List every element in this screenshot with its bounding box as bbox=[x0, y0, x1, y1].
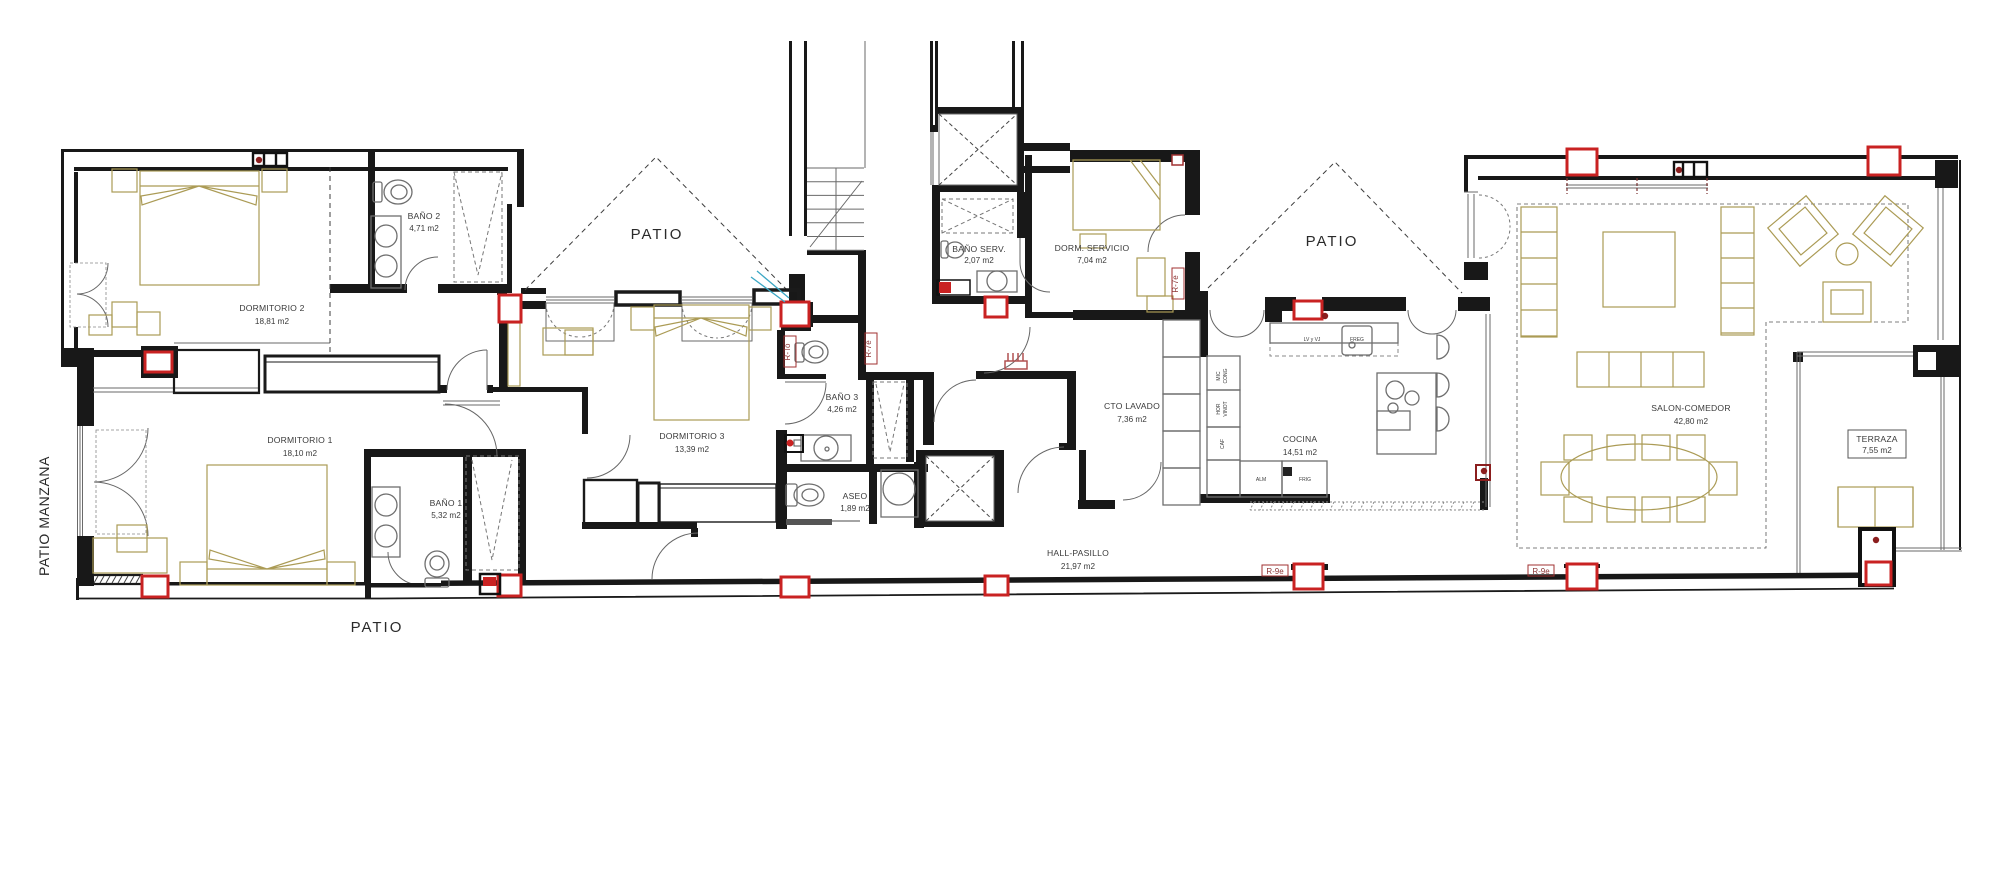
svg-text:R-7e: R-7e bbox=[1171, 275, 1180, 293]
svg-text:DORM. SERVICIO: DORM. SERVICIO bbox=[1055, 243, 1130, 253]
svg-text:18,81 m2: 18,81 m2 bbox=[255, 317, 290, 326]
svg-text:FRIG: FRIG bbox=[1299, 477, 1311, 483]
svg-text:SALON-COMEDOR: SALON-COMEDOR bbox=[1651, 403, 1730, 413]
svg-text:BAÑO 2: BAÑO 2 bbox=[408, 211, 441, 221]
svg-text:42,80 m2: 42,80 m2 bbox=[1674, 417, 1709, 426]
svg-text:COCINA: COCINA bbox=[1283, 434, 1318, 444]
svg-text:4,26 m2: 4,26 m2 bbox=[827, 405, 857, 414]
svg-text:R-9e: R-9e bbox=[1532, 567, 1550, 576]
svg-text:13,39 m2: 13,39 m2 bbox=[675, 445, 710, 454]
svg-text:BAÑO 1: BAÑO 1 bbox=[430, 498, 463, 508]
svg-text:5,32 m2: 5,32 m2 bbox=[431, 511, 461, 520]
svg-text:LV y VJ: LV y VJ bbox=[1304, 337, 1321, 343]
svg-text:PATIO MANZANA: PATIO MANZANA bbox=[36, 456, 52, 576]
svg-text:CONG: CONG bbox=[1223, 368, 1229, 383]
svg-text:CTO LAVADO: CTO LAVADO bbox=[1104, 401, 1160, 411]
svg-text:DORMITORIO 2: DORMITORIO 2 bbox=[239, 303, 304, 313]
svg-text:18,10 m2: 18,10 m2 bbox=[283, 449, 318, 458]
svg-text:ALM: ALM bbox=[1256, 477, 1266, 483]
svg-text:7,55 m2: 7,55 m2 bbox=[1862, 446, 1892, 455]
svg-text:7,36 m2: 7,36 m2 bbox=[1117, 415, 1147, 424]
svg-text:HOR: HOR bbox=[1216, 403, 1222, 415]
svg-text:FREG: FREG bbox=[1350, 337, 1364, 343]
svg-text:R-To: R-To bbox=[783, 343, 792, 360]
svg-text:R-9e: R-9e bbox=[1266, 567, 1284, 576]
svg-text:TERRAZA: TERRAZA bbox=[1856, 434, 1898, 444]
svg-text:PATIO: PATIO bbox=[351, 619, 404, 636]
svg-text:DORMITORIO 1: DORMITORIO 1 bbox=[267, 435, 332, 445]
svg-text:1,89 m2: 1,89 m2 bbox=[840, 504, 870, 513]
svg-text:PATIO: PATIO bbox=[631, 226, 684, 243]
svg-text:CAF: CAF bbox=[1220, 439, 1226, 449]
svg-text:PATIO: PATIO bbox=[1306, 233, 1359, 250]
svg-text:2,07 m2: 2,07 m2 bbox=[964, 256, 994, 265]
svg-text:21,97 m2: 21,97 m2 bbox=[1061, 562, 1096, 571]
svg-text:R-7e: R-7e bbox=[864, 340, 873, 358]
svg-text:BAÑO 3: BAÑO 3 bbox=[826, 392, 859, 402]
svg-text:MIC: MIC bbox=[1216, 371, 1222, 381]
svg-text:BAÑO SERV.: BAÑO SERV. bbox=[952, 244, 1006, 254]
svg-text:4,71 m2: 4,71 m2 bbox=[409, 224, 439, 233]
svg-text:14,51 m2: 14,51 m2 bbox=[1283, 448, 1318, 457]
svg-text:VINOT: VINOT bbox=[1223, 401, 1229, 416]
svg-text:DORMITORIO 3: DORMITORIO 3 bbox=[659, 431, 724, 441]
svg-text:7,04 m2: 7,04 m2 bbox=[1077, 256, 1107, 265]
svg-text:ASEO: ASEO bbox=[843, 491, 868, 501]
svg-text:HALL-PASILLO: HALL-PASILLO bbox=[1047, 548, 1109, 558]
